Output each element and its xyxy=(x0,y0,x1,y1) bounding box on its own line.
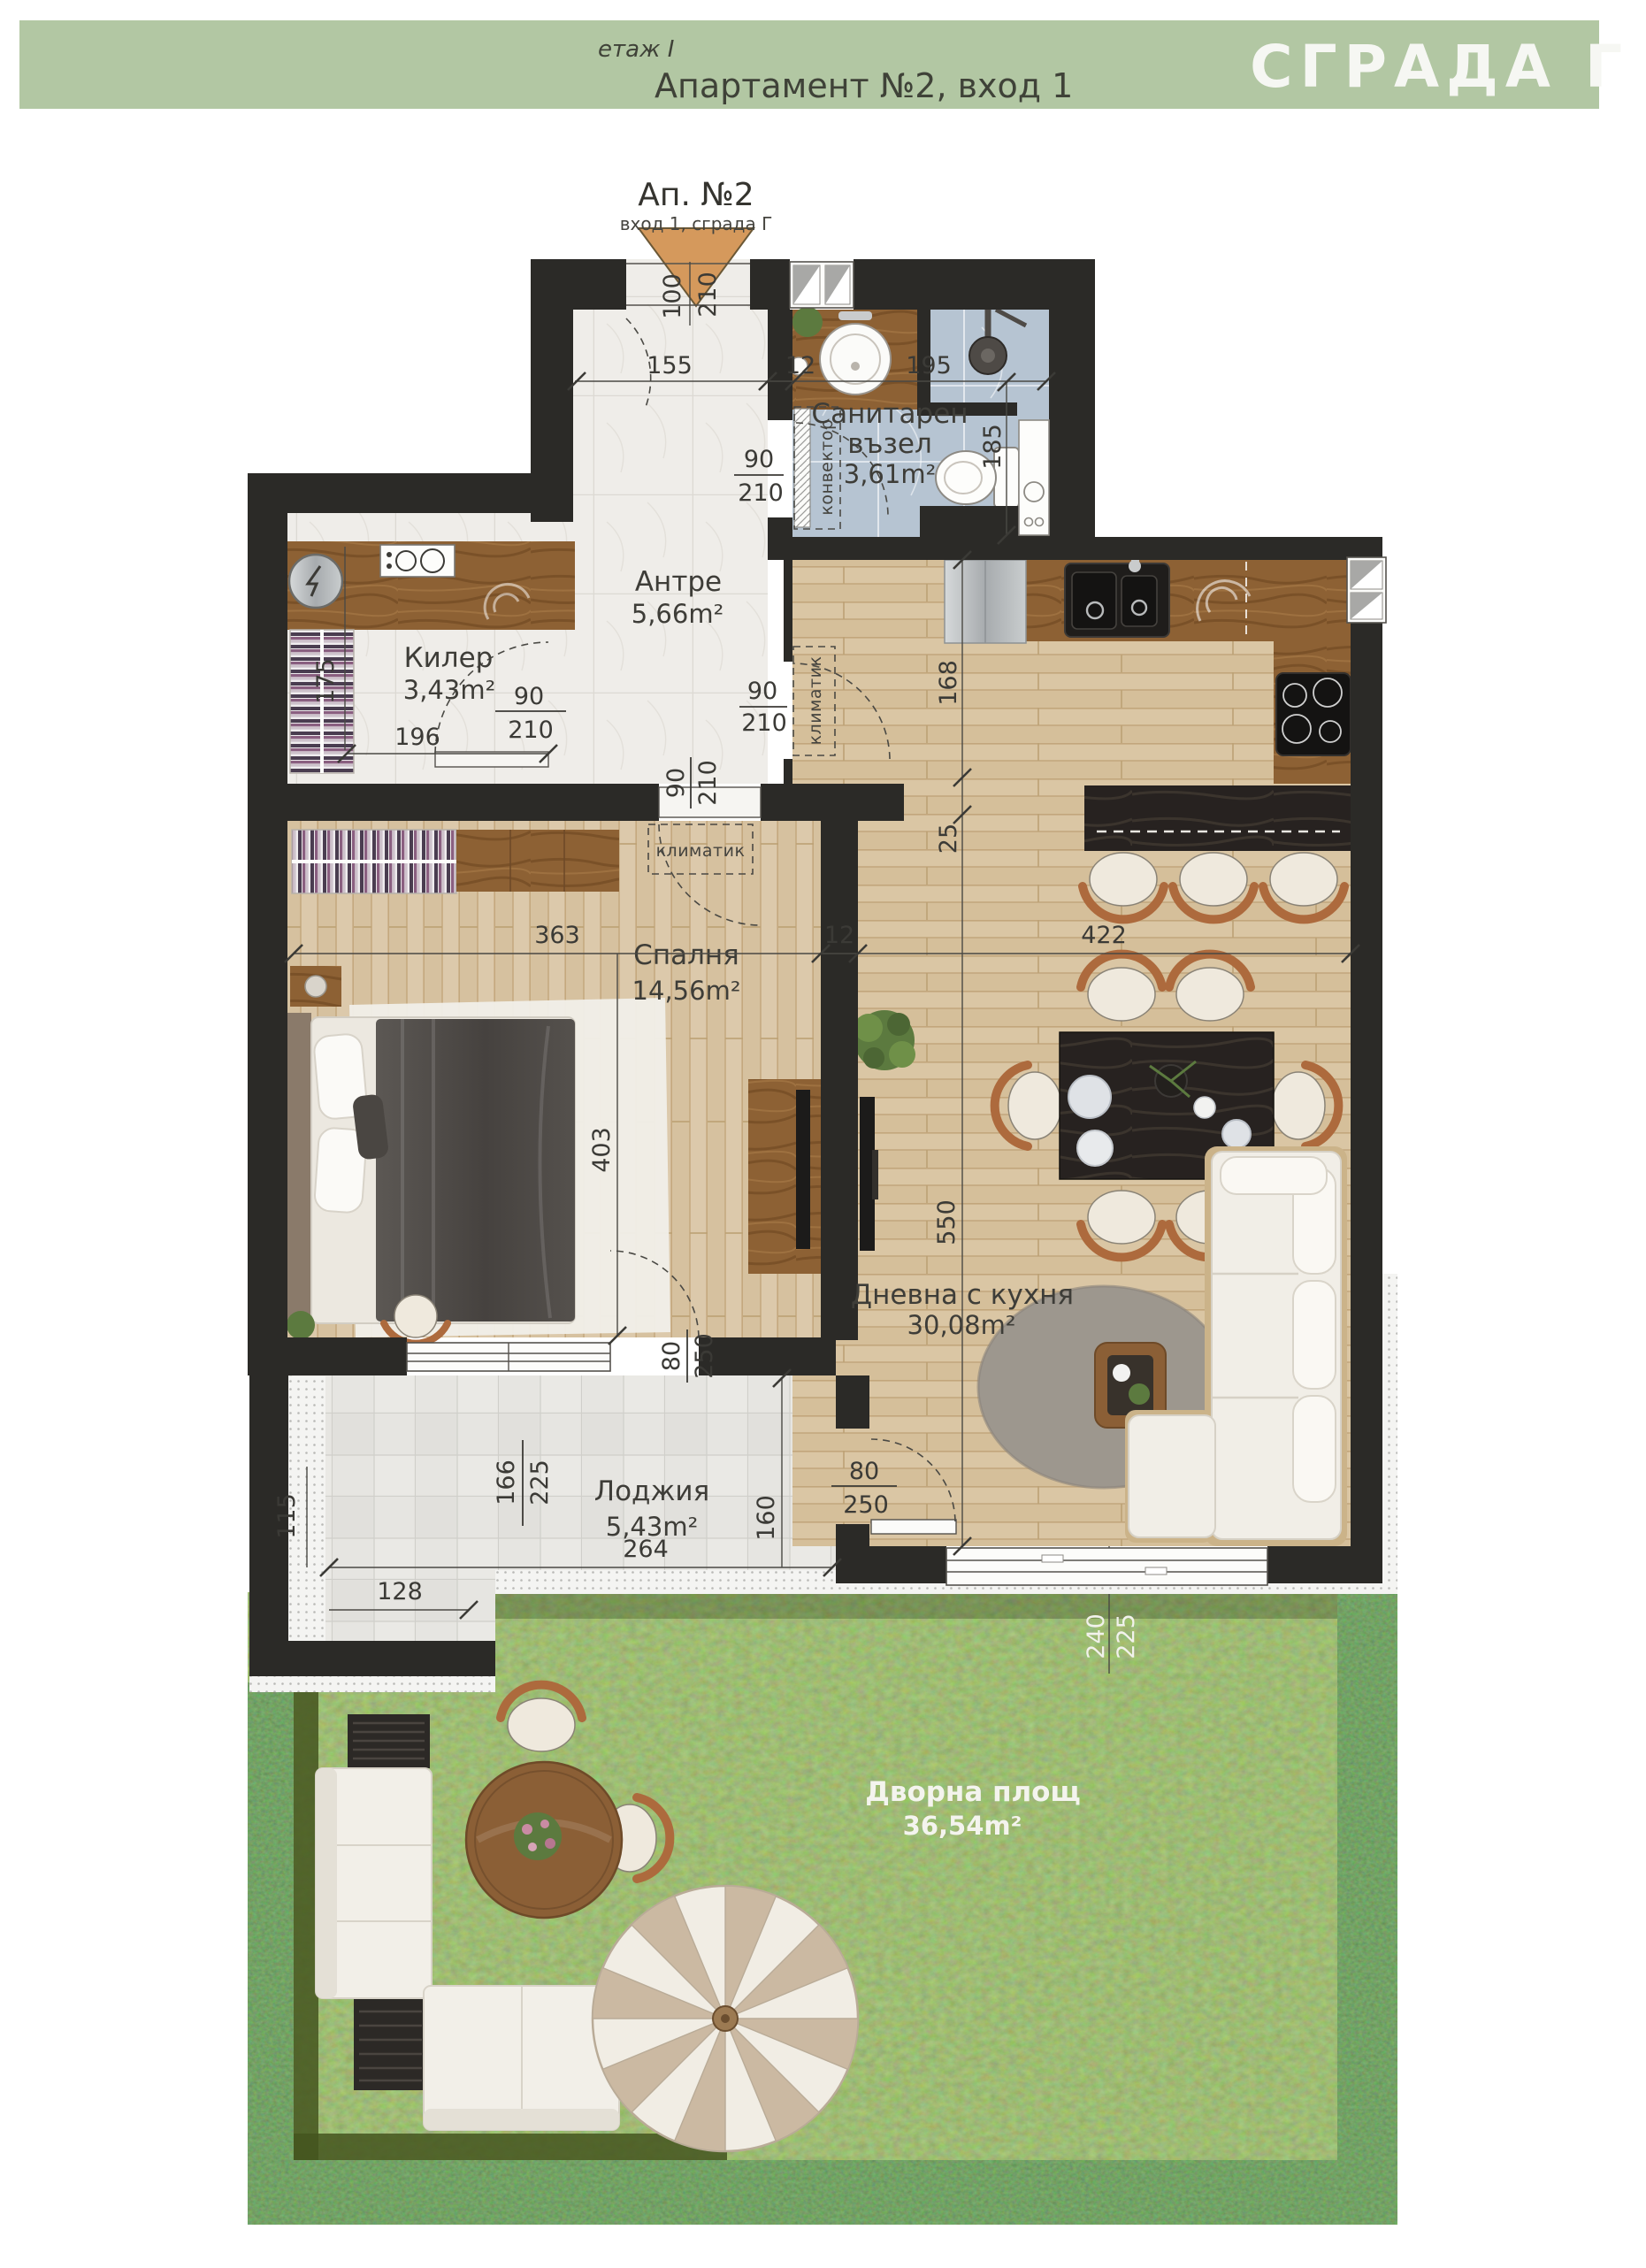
apartment-label: Ап. №2 xyxy=(638,177,754,213)
cooktop xyxy=(1276,673,1351,755)
floor-plan-page: Дворна площ 36,54m² 240 225 xyxy=(0,0,1646,2264)
ac-hall-label: климатик xyxy=(806,656,825,746)
bedroom-plant xyxy=(287,1311,315,1339)
hedge-shadow-bottom xyxy=(294,2134,727,2160)
bedroom-area: 14,56m² xyxy=(632,976,741,1006)
svg-text:196: 196 xyxy=(394,724,440,751)
dim-entry-width: 155 xyxy=(647,352,693,379)
outdoor-coffee-table xyxy=(354,1986,427,2090)
dim-hall-door: 90 210 xyxy=(739,678,787,737)
loggia-hatch-bottom xyxy=(495,1570,836,1594)
facade-hatch-right xyxy=(1382,1274,1397,1594)
storage-area: 3,43m² xyxy=(403,675,495,705)
bed xyxy=(285,1013,575,1327)
svg-text:264: 264 xyxy=(623,1536,669,1563)
svg-text:100: 100 xyxy=(659,273,686,319)
apartment-sublabel: вход 1, сграда Г xyxy=(620,213,773,234)
lamp-icon xyxy=(305,976,326,997)
convector-radiator xyxy=(794,409,810,527)
svg-text:166: 166 xyxy=(493,1460,520,1506)
floor-plan-svg: Дворна площ 36,54m² 240 225 xyxy=(0,0,1646,2264)
svg-text:210: 210 xyxy=(508,716,554,744)
table-flowers xyxy=(514,1812,562,1860)
svg-text:128: 128 xyxy=(377,1578,423,1605)
ac-bedroom-label: климатик xyxy=(656,841,746,861)
svg-text:175: 175 xyxy=(312,658,340,704)
svg-text:250: 250 xyxy=(691,1333,718,1379)
loggia-hatch-notch xyxy=(249,1676,495,1692)
svg-text:115: 115 xyxy=(273,1493,301,1539)
dim-living-width: 422 xyxy=(1081,922,1127,949)
bathroom-shaft xyxy=(1019,420,1049,535)
headboard xyxy=(285,1013,311,1327)
building-badge: СГРАДА Г xyxy=(1250,33,1629,101)
living-area-label: 30,08m² xyxy=(907,1310,1016,1340)
bathroom-window xyxy=(790,262,854,308)
header: етаж I Апартамент №2, вход 1 СГРАДА Г xyxy=(19,20,1629,109)
svg-text:210: 210 xyxy=(741,709,787,737)
svg-text:403: 403 xyxy=(588,1127,616,1173)
svg-text:90: 90 xyxy=(514,683,544,710)
hedge-shadow-left xyxy=(294,1682,318,2160)
dim-240: 240 xyxy=(1083,1613,1110,1659)
svg-text:90: 90 xyxy=(747,678,777,705)
storage-name: Килер xyxy=(404,642,494,674)
entry-area: 5,66m² xyxy=(632,599,723,629)
entrance-caption: Ап. №2 вход 1, сграда Г xyxy=(620,177,773,234)
bath-plant xyxy=(792,307,823,337)
svg-text:90: 90 xyxy=(744,446,774,473)
svg-text:80: 80 xyxy=(658,1341,685,1371)
bar-counter xyxy=(1084,785,1351,851)
yard-area: 36,54m² xyxy=(903,1811,1022,1841)
wardrobe-cabinet xyxy=(456,830,619,892)
bedroom-loggia-window xyxy=(407,1343,610,1371)
convector-label: конвектор xyxy=(817,418,837,515)
bedroom-tv xyxy=(796,1090,810,1249)
garden-sliding-door xyxy=(946,1548,1267,1585)
svg-text:210: 210 xyxy=(694,760,722,806)
bath-name2: възел xyxy=(847,428,932,460)
bath-name1: Санитарен xyxy=(811,398,968,430)
bedroom-name: Спалня xyxy=(633,939,739,971)
dim-wall25: 25 xyxy=(935,824,962,854)
dim-wall12: 12 xyxy=(824,922,854,949)
dim-bath-width: 195 xyxy=(906,352,952,379)
sink-faucet-icon xyxy=(838,311,872,320)
dim-kitchen-wall: 168 xyxy=(935,660,962,706)
svg-text:250: 250 xyxy=(843,1491,889,1519)
dim-bedroom-width: 363 xyxy=(534,922,580,949)
dim-living-depth: 550 xyxy=(933,1199,961,1245)
bath-area: 3,61m² xyxy=(844,459,936,489)
svg-text:80: 80 xyxy=(849,1458,879,1485)
svg-text:210: 210 xyxy=(738,479,784,507)
garden-umbrella xyxy=(593,1886,858,2151)
kitchen-window xyxy=(1347,557,1386,623)
svg-text:210: 210 xyxy=(694,272,722,318)
header-floor: етаж I xyxy=(598,36,674,63)
header-title: Апартамент №2, вход 1 xyxy=(655,66,1073,105)
washing-machine-icon xyxy=(289,555,342,608)
dim-225: 225 xyxy=(1113,1613,1140,1659)
dim-gap12: 12 xyxy=(785,352,815,379)
yard-name: Дворна площ xyxy=(865,1776,1081,1808)
svg-text:160: 160 xyxy=(753,1495,780,1541)
bedroom-tv-console xyxy=(748,1079,821,1274)
svg-text:90: 90 xyxy=(662,768,690,798)
svg-text:225: 225 xyxy=(526,1460,554,1506)
svg-text:185: 185 xyxy=(979,424,1007,470)
entry-name: Антре xyxy=(635,566,722,598)
loggia-name: Лоджия xyxy=(594,1475,709,1507)
